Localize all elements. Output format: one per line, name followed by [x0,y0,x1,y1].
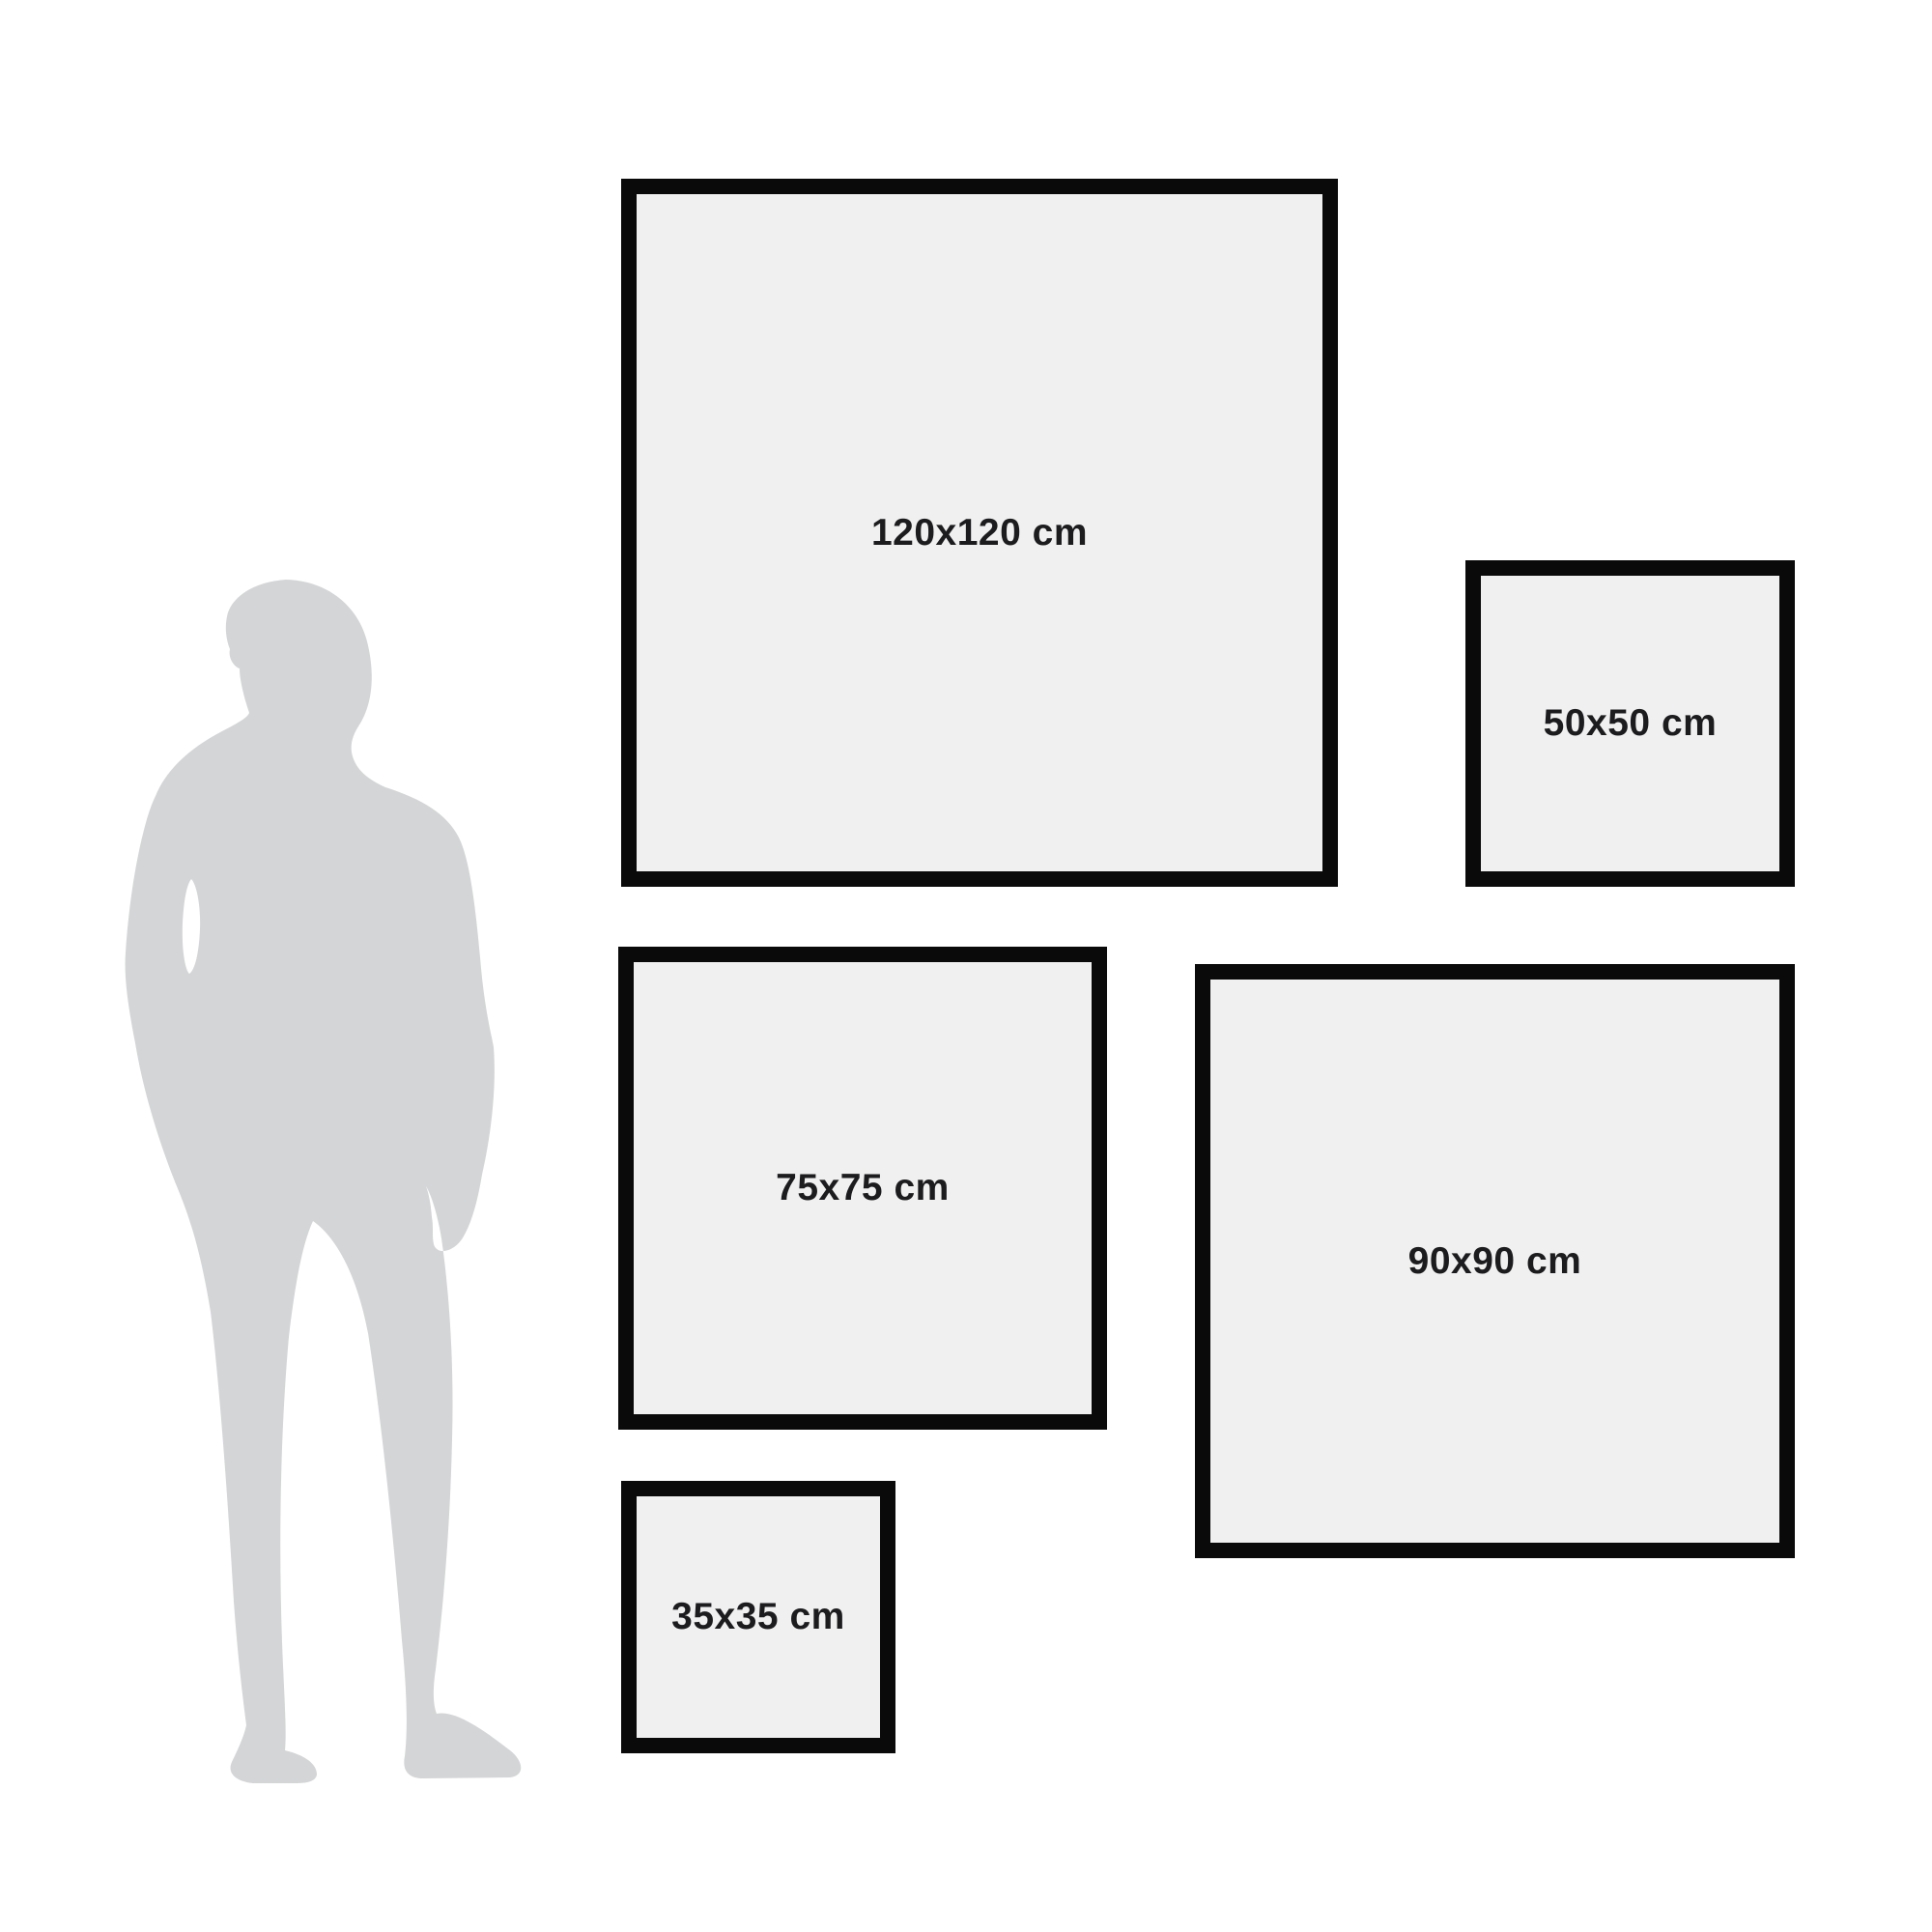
size-label-50x50: 50x50 cm [1544,702,1718,745]
size-label-90x90: 90x90 cm [1408,1240,1582,1283]
size-label-75x75: 75x75 cm [776,1167,950,1209]
size-frame-50x50: 50x50 cm [1465,560,1795,887]
size-frame-75x75: 75x75 cm [618,947,1107,1430]
size-frame-90x90: 90x90 cm [1195,964,1795,1558]
size-frame-35x35: 35x35 cm [621,1481,895,1753]
size-label-120x120: 120x120 cm [871,512,1088,554]
size-frame-120x120: 120x120 cm [621,179,1338,887]
size-comparison-diagram: 120x120 cm 50x50 cm 75x75 cm 90x90 cm 35… [0,0,1932,1932]
size-label-35x35: 35x35 cm [671,1596,845,1638]
man-silhouette-shape [126,580,522,1783]
